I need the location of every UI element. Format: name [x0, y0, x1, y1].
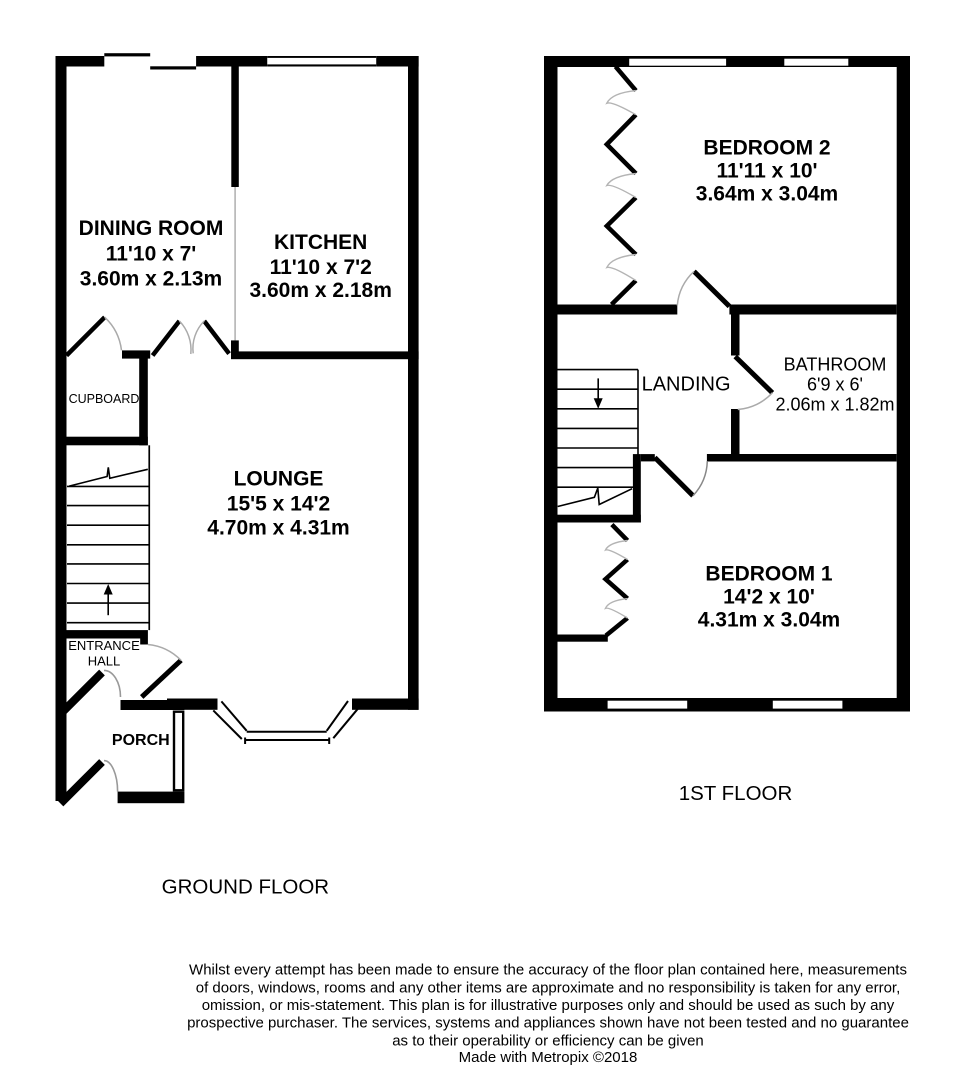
svg-text:of doors, windows, rooms and a: of doors, windows, rooms and any other i…: [196, 979, 901, 996]
svg-text:2.06m x 1.82m: 2.06m x 1.82m: [775, 395, 894, 415]
svg-text:BEDROOM 1: BEDROOM 1: [705, 563, 833, 586]
svg-text:ENTRANCE: ENTRANCE: [68, 638, 140, 653]
svg-text:11'11 x 10': 11'11 x 10': [716, 159, 817, 182]
svg-text:11'10 x 7': 11'10 x 7': [106, 242, 197, 265]
svg-text:14'2 x 10': 14'2 x 10': [723, 586, 815, 609]
svg-text:4.70m x 4.31m: 4.70m x 4.31m: [207, 516, 349, 539]
svg-text:LOUNGE: LOUNGE: [234, 467, 324, 490]
svg-text:LANDING: LANDING: [642, 374, 731, 396]
svg-text:omission, or mis-statement. Th: omission, or mis-statement. This plan is…: [202, 997, 895, 1014]
svg-text:3.60m x 2.13m: 3.60m x 2.13m: [80, 268, 222, 291]
svg-text:11'10 x 7'2: 11'10 x 7'2: [270, 256, 372, 279]
svg-text:KITCHEN: KITCHEN: [274, 231, 367, 254]
svg-text:6'9 x 6': 6'9 x 6': [807, 375, 863, 395]
svg-text:15'5 x 14'2: 15'5 x 14'2: [227, 493, 330, 516]
svg-text:3.60m x 2.18m: 3.60m x 2.18m: [249, 279, 391, 302]
svg-text:PORCH: PORCH: [112, 732, 170, 749]
svg-text:as to their operability or eff: as to their operability or efficiency ca…: [392, 1032, 704, 1049]
svg-text:BATHROOM: BATHROOM: [784, 355, 887, 375]
svg-text:GROUND FLOOR: GROUND FLOOR: [162, 876, 329, 899]
svg-text:BEDROOM 2: BEDROOM 2: [703, 136, 830, 159]
svg-text:prospective purchaser. The ser: prospective purchaser. The services, sys…: [187, 1015, 909, 1032]
svg-text:Whilst every attempt has been: Whilst every attempt has been made to en…: [189, 962, 907, 979]
svg-text:Made with Metropix ©2018: Made with Metropix ©2018: [459, 1049, 638, 1066]
svg-text:3.64m x 3.04m: 3.64m x 3.04m: [696, 182, 838, 205]
svg-text:DINING ROOM: DINING ROOM: [79, 217, 224, 240]
svg-text:4.31m x 3.04m: 4.31m x 3.04m: [698, 609, 840, 632]
svg-text:1ST FLOOR: 1ST FLOOR: [679, 782, 793, 805]
svg-text:HALL: HALL: [88, 654, 121, 669]
svg-text:CUPBOARD: CUPBOARD: [69, 392, 140, 406]
